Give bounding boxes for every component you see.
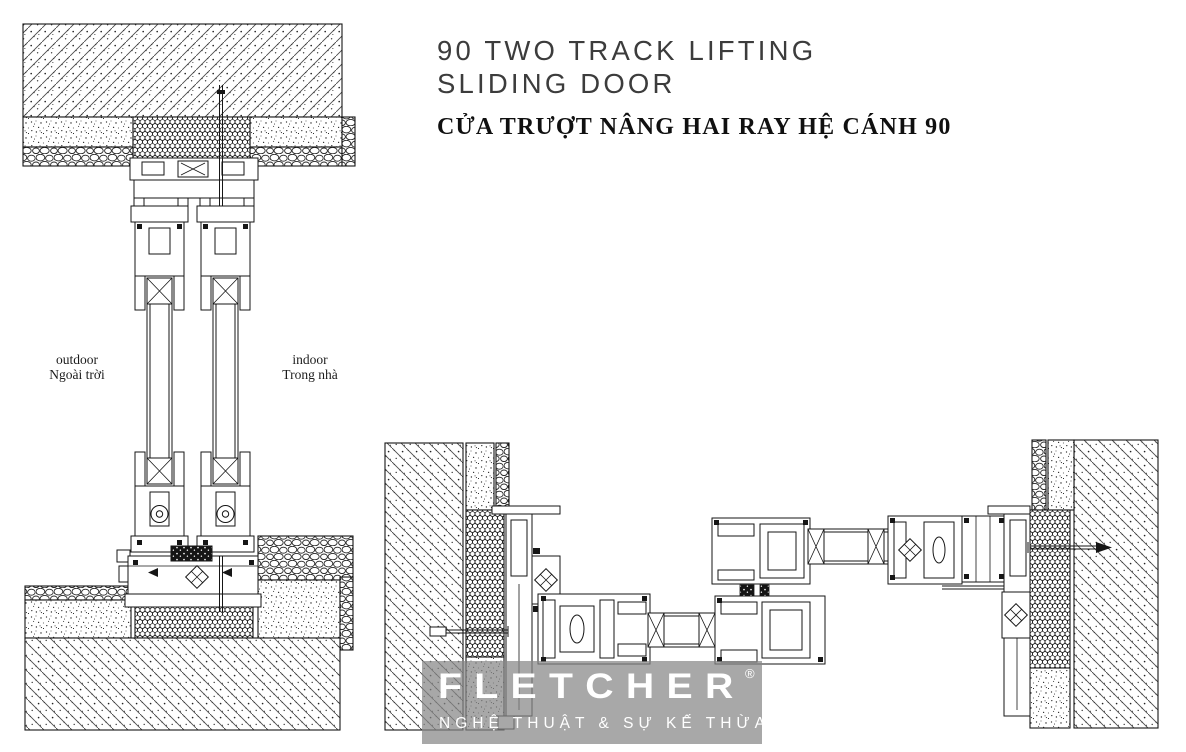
outdoor-label: outdoor Ngoài trời [22, 352, 132, 382]
logo-brand-text: FLETCHER [438, 667, 746, 707]
top-wall-pebble-left [23, 147, 133, 166]
subtitle-vietnamese: CỬA TRƯỢT NÂNG HAI RAY HỆ CÁNH 90 [437, 114, 952, 141]
lower-panel-interlock-stile [715, 596, 825, 664]
lower-panel-glass [648, 613, 715, 647]
title-block: 90 TWO TRACK LIFTING SLIDING DOOR CỬA TR… [437, 34, 952, 141]
lower-panel-lock-stile [538, 594, 650, 664]
interlock-seal-a [740, 585, 754, 596]
right-wall-concrete [1074, 440, 1158, 728]
left-wall-plaster [466, 443, 494, 510]
title-line-1: 90 TWO TRACK LIFTING [437, 34, 952, 67]
drawing-sheet: 90 TWO TRACK LIFTING SLIDING DOOR CỬA TR… [0, 0, 1186, 752]
indoor-label-en: indoor [255, 352, 365, 367]
right-wall-plaster [1048, 440, 1074, 510]
registered-trademark-mark: ® [745, 666, 755, 681]
upper-panel-glass [808, 529, 888, 564]
indoor-label-vi: Trong nhà [255, 367, 365, 382]
left-wall-pebble [496, 443, 509, 510]
upper-panel-lock-stile [888, 516, 962, 584]
indoor-sash-bottom-profile [197, 452, 254, 552]
indoor-label: indoor Trong nhà [255, 352, 365, 382]
top-wall-plaster-right [250, 117, 342, 147]
right-jamb-insulation [1030, 510, 1070, 668]
right-wall-plaster-lower [1030, 668, 1070, 728]
left-jamb-insulation [466, 510, 504, 657]
head-frame-profile [130, 158, 258, 206]
top-wall-concrete [23, 24, 342, 117]
bottom-wall-pebble-edge [340, 577, 353, 650]
bottom-wall-concrete [25, 638, 340, 730]
fletcher-logo-watermark: FLETCHER ® NGHỆ THUẬT & SỰ KẾ THỪA [422, 661, 762, 744]
center-track-seal [171, 546, 212, 561]
bottom-wall-plaster-right [258, 580, 340, 638]
outdoor-sash-bottom-profile [131, 452, 188, 552]
top-wall-plaster-left [23, 117, 133, 147]
outdoor-sash-top-profile [131, 206, 188, 310]
outdoor-label-vi: Ngoài trời [22, 367, 132, 382]
outdoor-label-en: outdoor [22, 352, 132, 367]
logo-tagline: NGHỆ THUẬT & SỰ KẾ THỪA [439, 715, 770, 733]
title-line-2: SLIDING DOOR [437, 67, 952, 100]
indoor-sash-glass [213, 304, 238, 466]
bottom-wall-pebble-left [25, 586, 128, 600]
outdoor-sash-glass [147, 304, 172, 466]
right-wall-pebble [1032, 440, 1046, 510]
upper-panel-interlock-stile [712, 518, 810, 584]
top-wall-pebble-edge [342, 117, 355, 166]
bottom-wall-pebble-right [258, 536, 353, 580]
indoor-sash-top-profile [197, 206, 254, 310]
bottom-wall-plaster-left [25, 600, 131, 638]
interlock-seal-b [760, 585, 769, 596]
top-wall-pebble-right [250, 147, 342, 166]
